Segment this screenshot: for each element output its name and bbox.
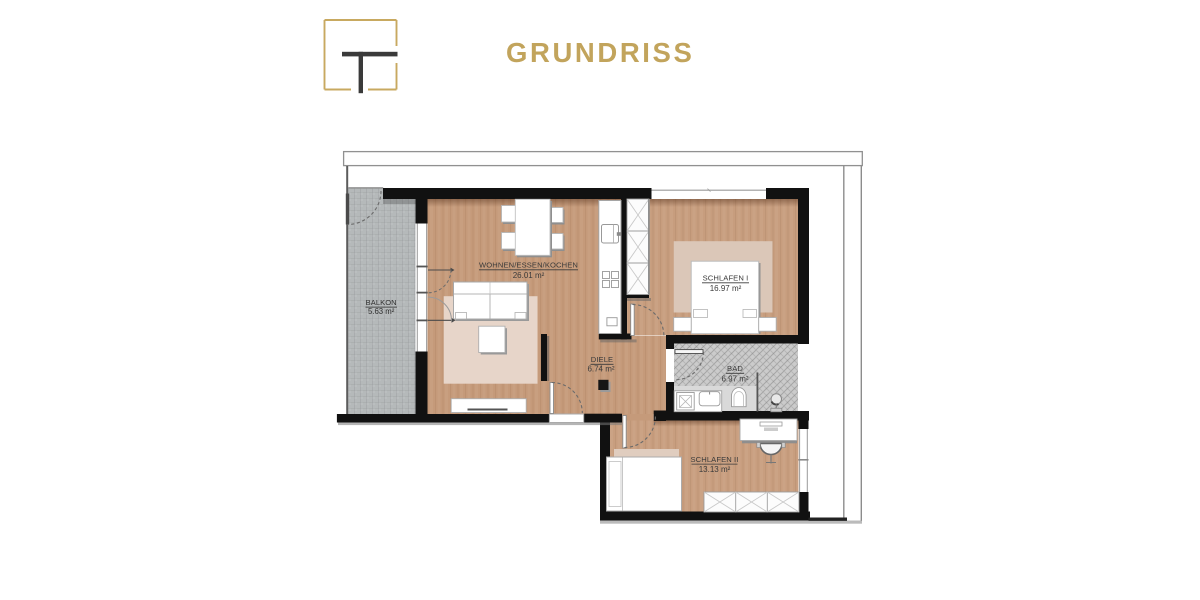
- svg-text:SCHLAFEN I: SCHLAFEN I: [703, 274, 749, 283]
- svg-text:GRUNDRISS: GRUNDRISS: [506, 37, 694, 68]
- svg-text:26.01 m²: 26.01 m²: [513, 271, 545, 280]
- svg-text:6.97 m²: 6.97 m²: [721, 374, 748, 383]
- svg-text:SCHLAFEN II: SCHLAFEN II: [691, 455, 739, 464]
- svg-text:WOHNEN/ESSEN/KOCHEN: WOHNEN/ESSEN/KOCHEN: [479, 261, 578, 270]
- svg-text:BALKON: BALKON: [366, 298, 397, 307]
- svg-text:13.13 m²: 13.13 m²: [699, 465, 731, 474]
- svg-text:BAD: BAD: [727, 364, 743, 373]
- svg-text:DIELE: DIELE: [591, 355, 613, 364]
- svg-text:5.63 m²: 5.63 m²: [368, 307, 395, 316]
- svg-text:6.74 m²: 6.74 m²: [587, 364, 614, 373]
- svg-text:16.97 m²: 16.97 m²: [710, 284, 742, 293]
